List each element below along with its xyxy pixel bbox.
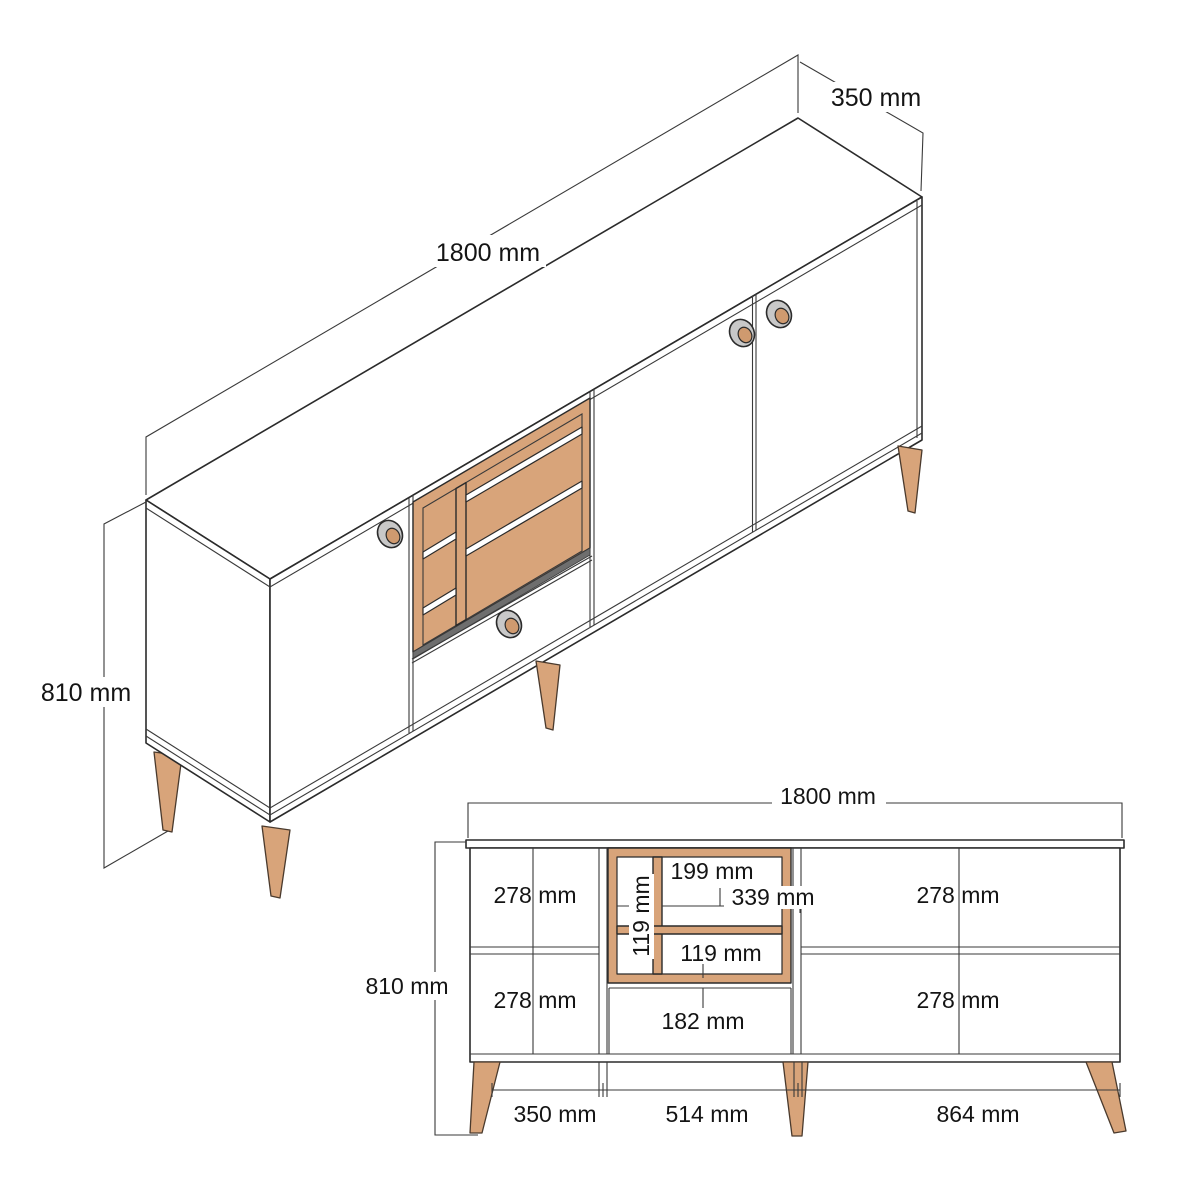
iso-leg-front-right: [898, 446, 922, 513]
fr-shelf-vertical-divider: [653, 857, 662, 974]
iso-width-label: 1800 mm: [436, 239, 540, 267]
fr-shelf-bottom-label: 119 mm: [680, 940, 761, 966]
fr-leg-middle: [783, 1062, 808, 1136]
fr-bottom-left-label: 350 mm: [513, 1101, 596, 1127]
fr-shelf-top-label: 199 mm: [670, 858, 753, 884]
fr-shelf-right-label: 339 mm: [731, 884, 814, 910]
fr-body: [470, 848, 1120, 1062]
fr-dim-width: 1800 mm: [468, 782, 1122, 838]
fr-label-bottom-left: 278 mm: [493, 987, 576, 1013]
fr-top-board: [466, 840, 1124, 848]
fr-label-top-left: 278 mm: [493, 882, 576, 908]
shelf-vertical-divider: [456, 483, 466, 626]
fr-shelf-column-label: 119 mm: [628, 875, 654, 956]
fr-bottom-right-label: 864 mm: [936, 1101, 1019, 1127]
fr-width-label: 1800 mm: [780, 783, 876, 809]
iso-leg-front-middle: [536, 661, 560, 730]
iso-leg-front-left: [262, 826, 290, 898]
front-elevation-view: 1800 mm 810 mm 278 mm 278 mm 278 mm 278 …: [356, 782, 1126, 1136]
technical-drawing-page: 1800 mm 350 mm 810 mm: [0, 0, 1181, 1200]
fr-label-bottom-right: 278 mm: [916, 987, 999, 1013]
drawing-canvas: 1800 mm 350 mm 810 mm: [0, 0, 1181, 1200]
fr-dim-height: 810 mm: [356, 842, 478, 1135]
isometric-view: 1800 mm 350 mm 810 mm: [34, 55, 928, 898]
fr-label-top-right: 278 mm: [916, 882, 999, 908]
iso-height-label: 810 mm: [41, 679, 131, 707]
fr-bottom-middle-label: 514 mm: [665, 1101, 748, 1127]
fr-leg-left: [470, 1062, 500, 1133]
fr-leg-right: [1086, 1062, 1126, 1133]
iso-depth-label: 350 mm: [831, 84, 921, 112]
fr-height-label: 810 mm: [365, 973, 448, 999]
fr-drawer-label: 182 mm: [661, 1008, 744, 1034]
